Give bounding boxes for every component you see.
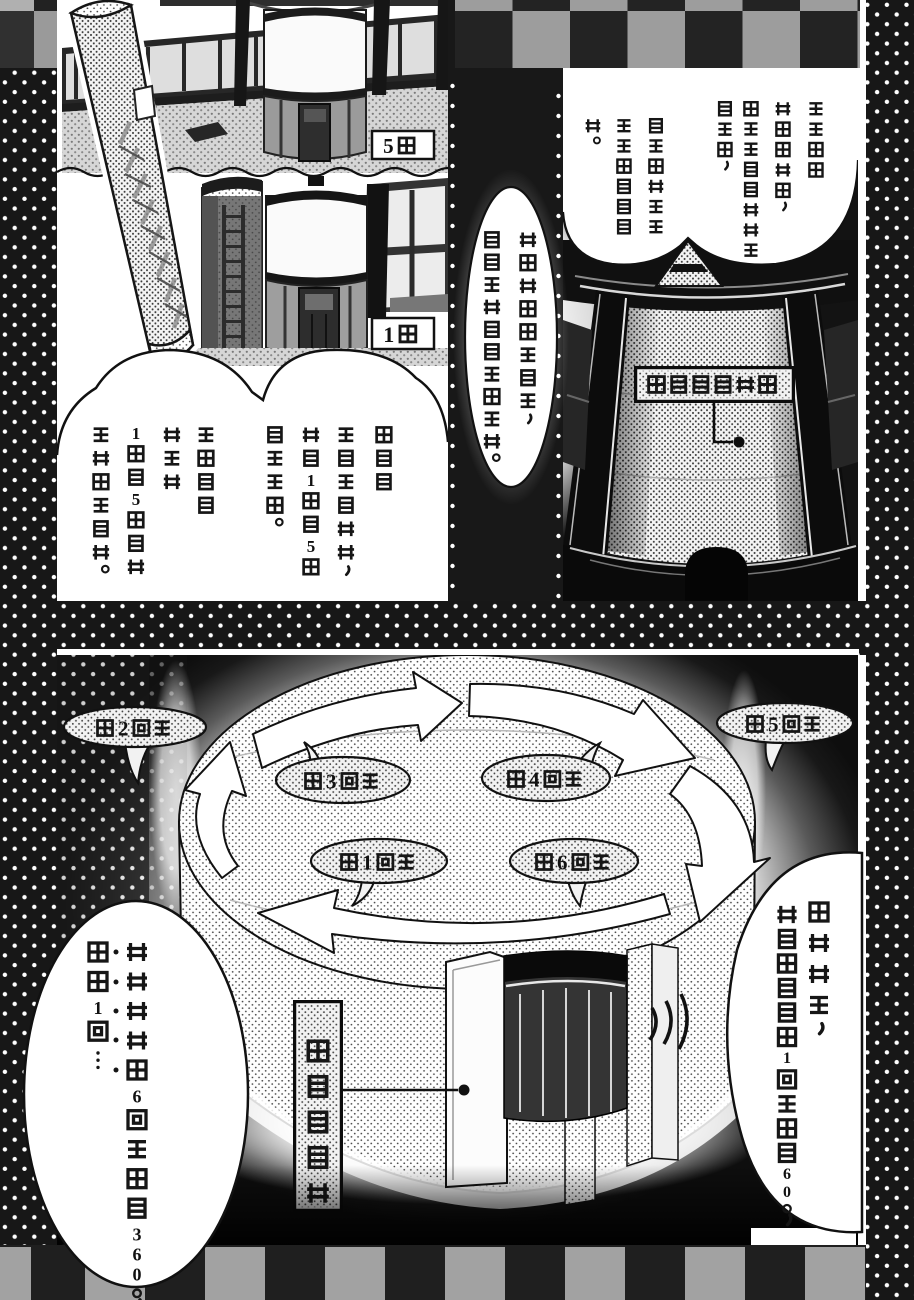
svg-text:1: 1 (94, 998, 103, 1018)
svg-text:0: 0 (783, 1184, 791, 1201)
svg-text:2: 2 (118, 717, 129, 741)
svg-text:1: 1 (307, 471, 316, 490)
svg-text:6: 6 (133, 1245, 142, 1265)
svg-text:6: 6 (133, 1086, 142, 1106)
svg-text:1: 1 (783, 1050, 791, 1067)
svg-text:5: 5 (307, 537, 316, 556)
svg-text:5: 5 (383, 134, 394, 158)
svg-text:3: 3 (133, 1224, 142, 1244)
svg-text:6: 6 (557, 851, 568, 875)
svg-text:6: 6 (783, 1166, 791, 1183)
svg-text:1: 1 (383, 322, 394, 347)
svg-text:4: 4 (529, 768, 540, 792)
svg-text:1: 1 (362, 851, 373, 875)
svg-text:0: 0 (133, 1265, 142, 1285)
svg-text:3: 3 (326, 770, 337, 794)
svg-text:1: 1 (132, 424, 141, 443)
svg-text:5: 5 (768, 713, 779, 737)
svg-text:5: 5 (132, 490, 141, 509)
